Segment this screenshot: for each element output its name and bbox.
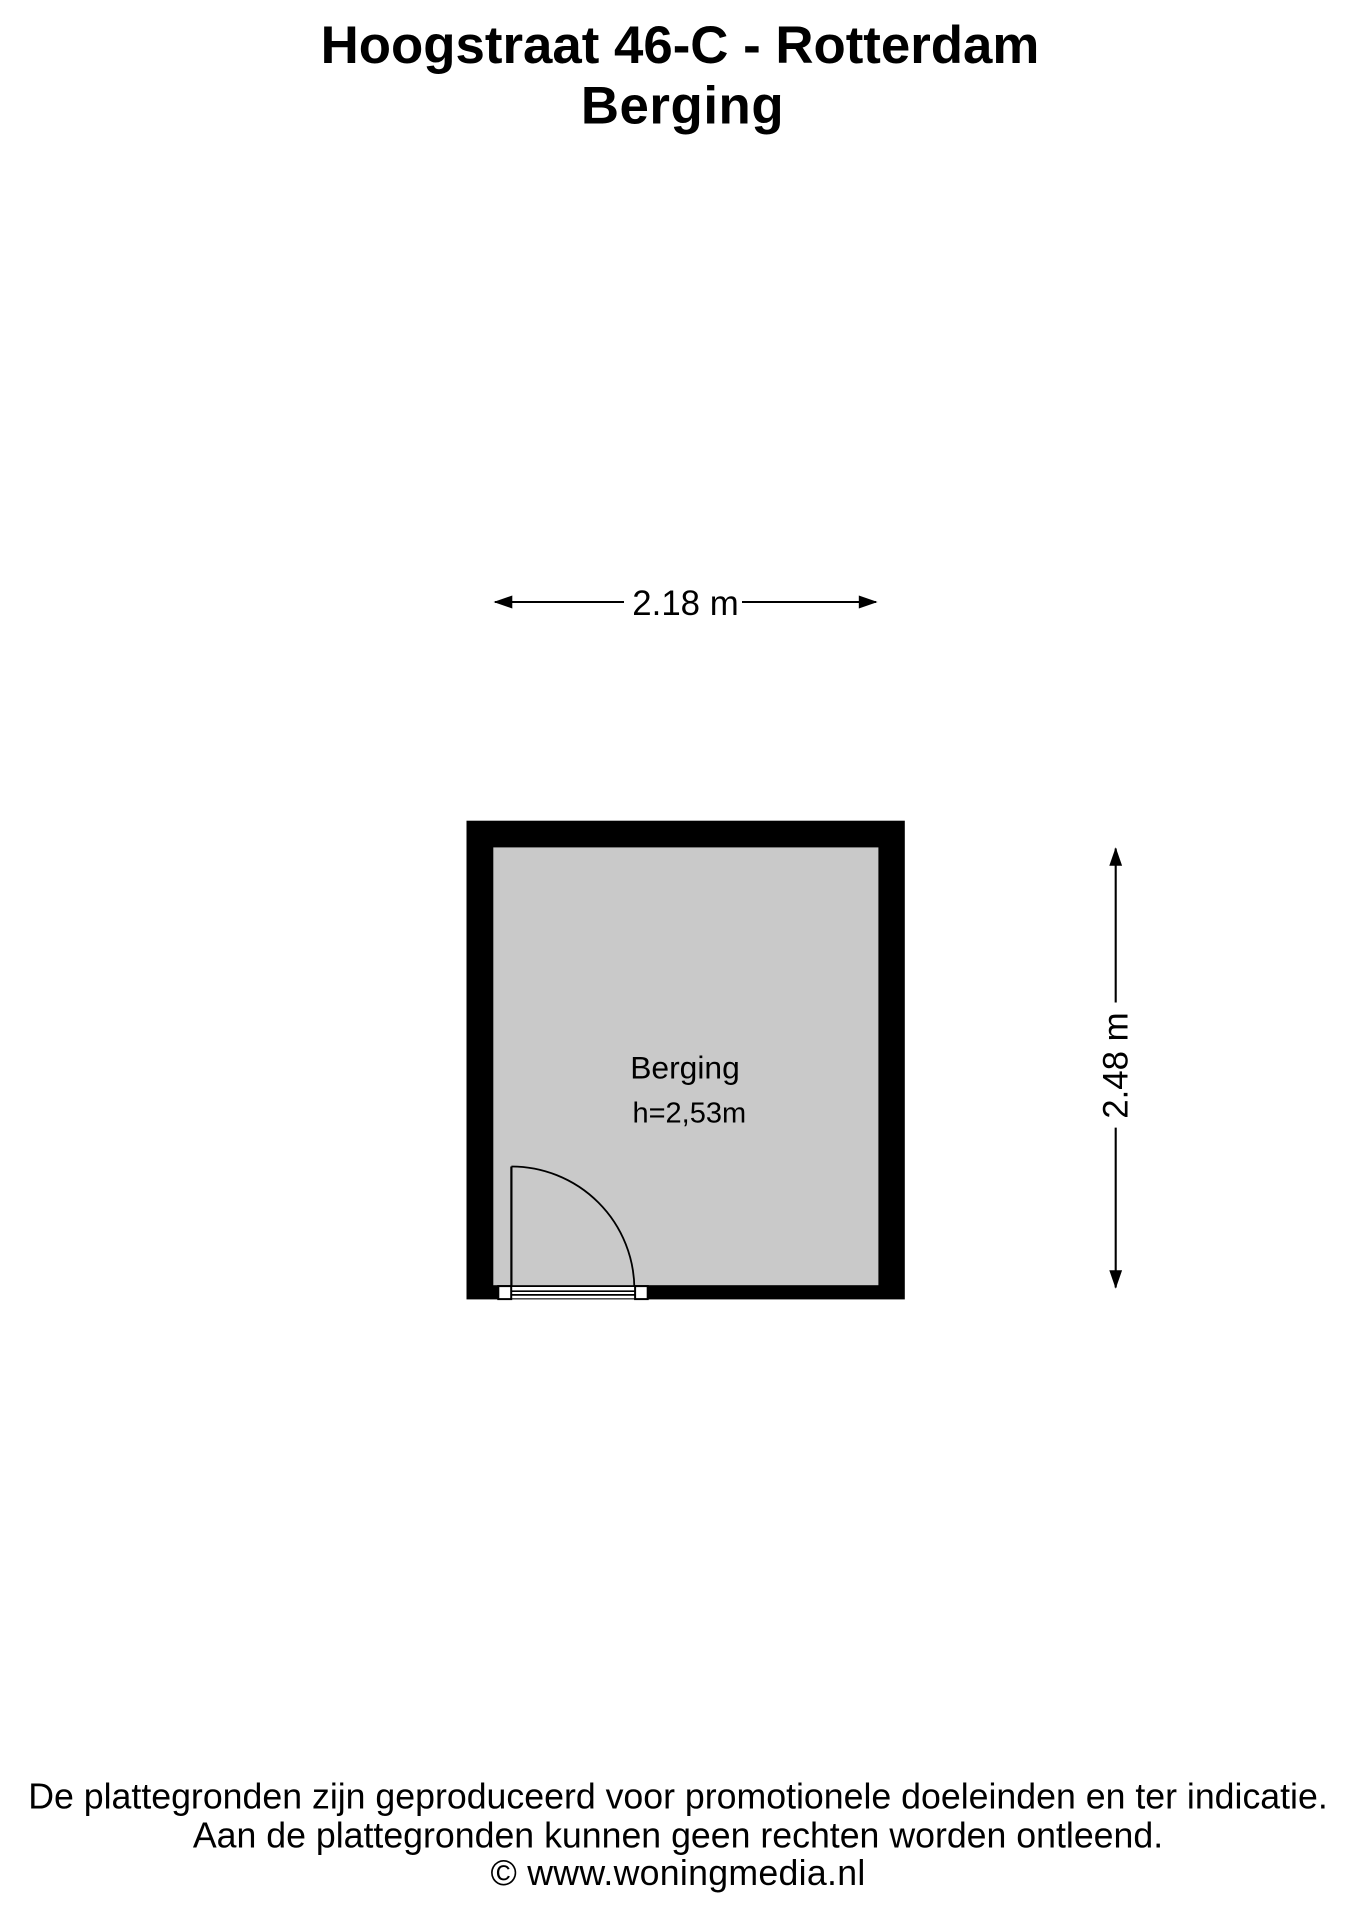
svg-text:De plattegronden zijn geproduc: De plattegronden zijn geproduceerd voor … — [28, 1776, 1328, 1816]
svg-text:Hoogstraat 46-C - Rotterdam: Hoogstraat 46-C - Rotterdam — [321, 16, 1040, 75]
svg-text:© www.woningmedia.nl: © www.woningmedia.nl — [490, 1853, 865, 1893]
svg-text:Berging: Berging — [581, 77, 784, 136]
svg-text:Berging: Berging — [630, 1049, 740, 1085]
svg-text:2.18 m: 2.18 m — [632, 584, 738, 623]
svg-text:2.48 m: 2.48 m — [1097, 1012, 1136, 1118]
svg-text:Aan de plattegronden kunnen ge: Aan de plattegronden kunnen geen rechten… — [193, 1816, 1163, 1856]
svg-text:h=2,53m: h=2,53m — [632, 1097, 746, 1129]
